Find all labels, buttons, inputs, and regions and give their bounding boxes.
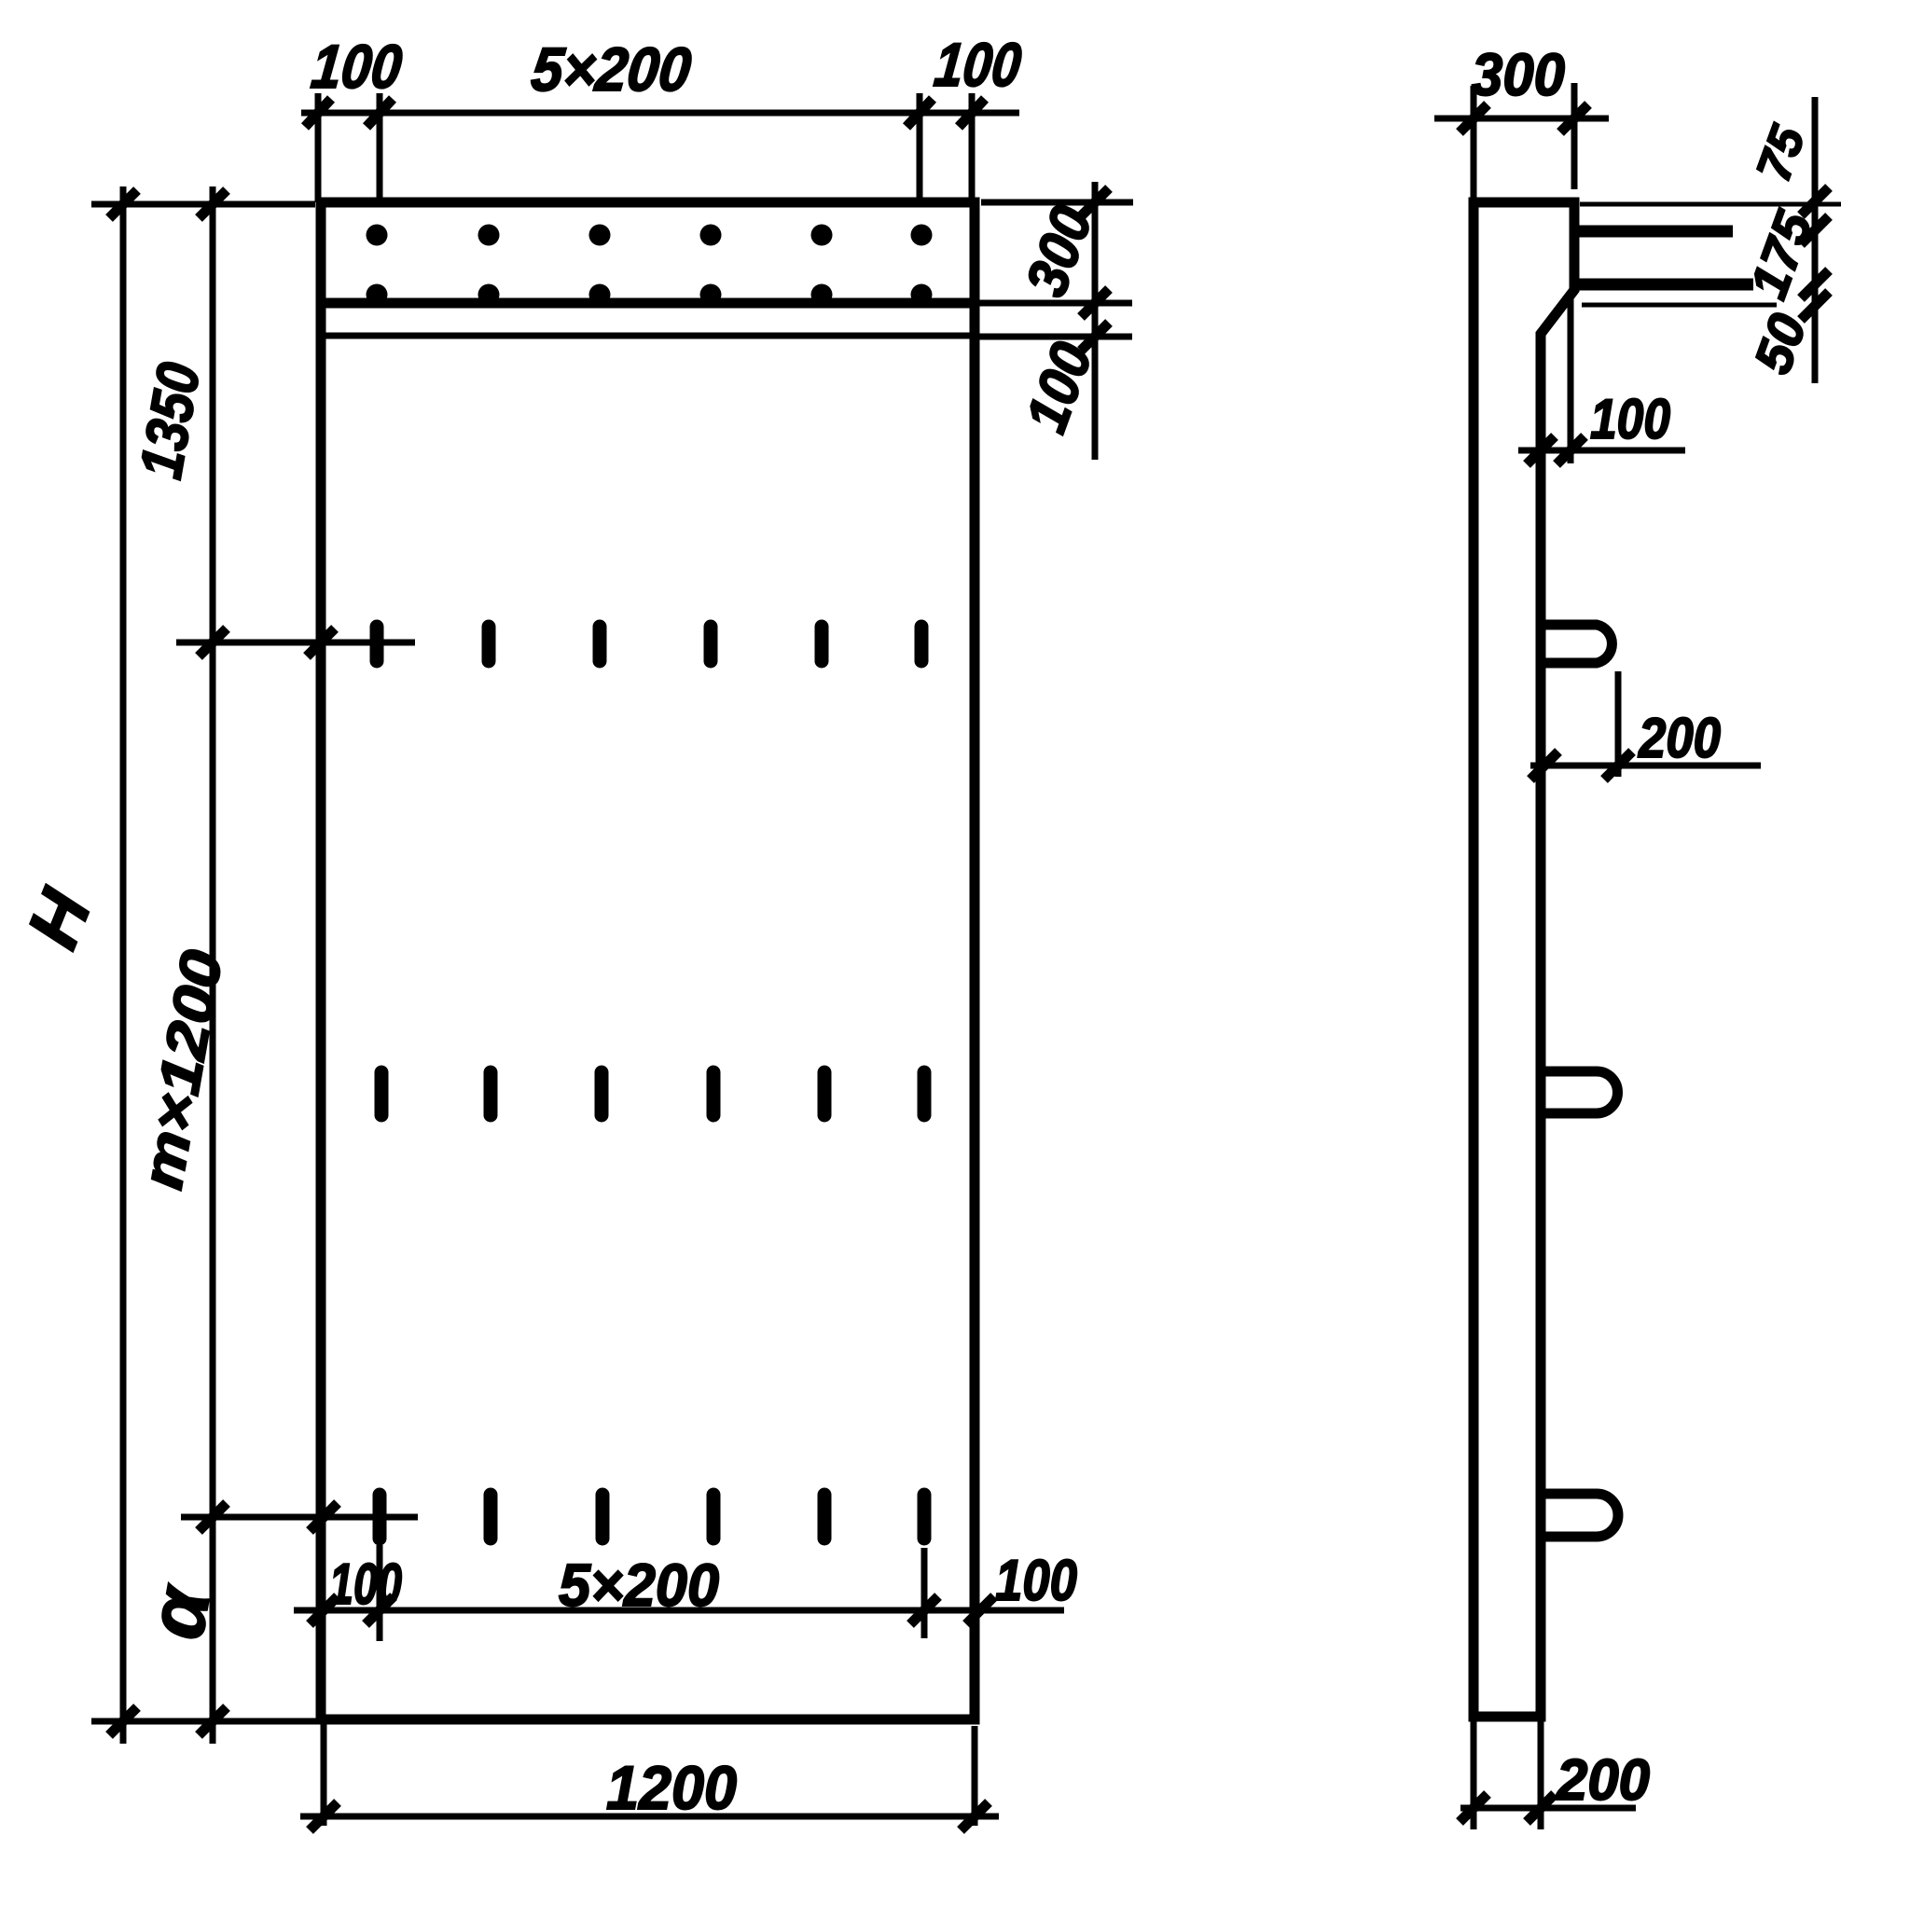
svg-text:100: 100: [931, 31, 1024, 100]
svg-text:100: 100: [995, 1549, 1077, 1613]
svg-text:5×200: 5×200: [559, 1552, 719, 1619]
svg-text:1200: 1200: [606, 1753, 737, 1822]
svg-text:100: 100: [1590, 388, 1670, 450]
svg-text:100: 100: [308, 33, 405, 102]
svg-text:100: 100: [329, 1552, 402, 1617]
svg-text:200: 200: [1638, 707, 1721, 769]
svg-text:300: 300: [1472, 41, 1565, 108]
svg-text:5×200: 5×200: [528, 35, 694, 104]
svg-text:200: 200: [1556, 1748, 1650, 1813]
